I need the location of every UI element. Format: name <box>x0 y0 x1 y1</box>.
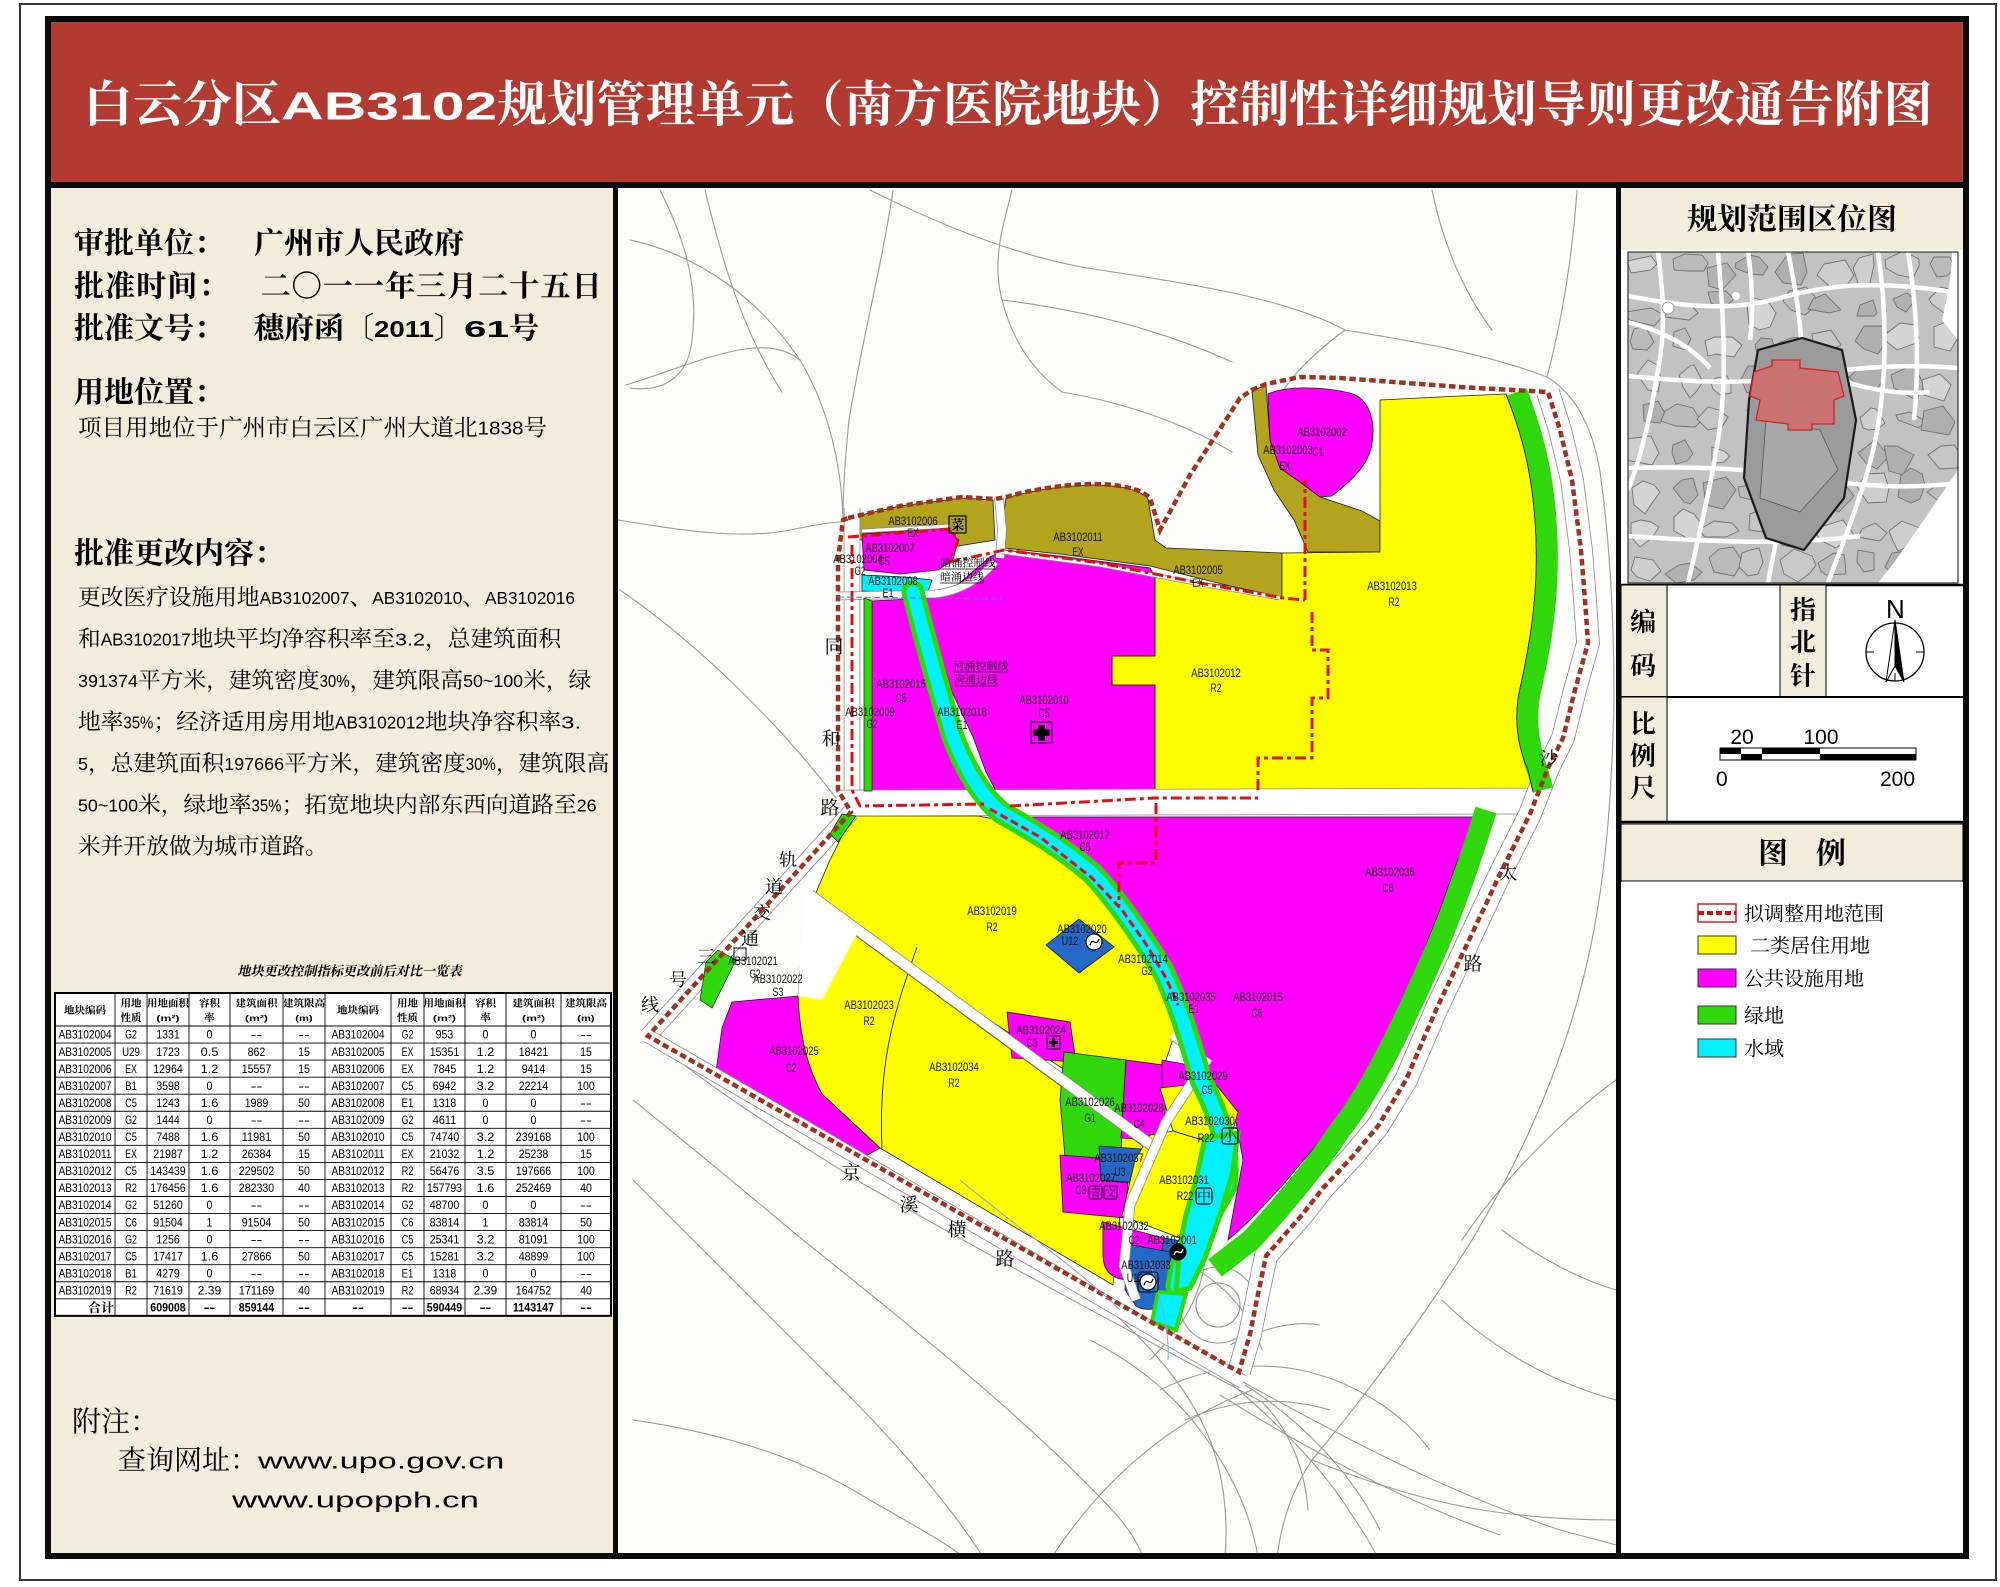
svg-text:AB3102004: AB3102004 <box>58 1028 111 1042</box>
svg-text:27866: 27866 <box>242 1249 272 1263</box>
svg-text:40: 40 <box>298 1181 310 1195</box>
svg-text:G2: G2 <box>402 1113 414 1127</box>
svg-text:50~100: 50~100 <box>463 671 523 691</box>
svg-text:197666: 197666 <box>224 754 284 774</box>
svg-text:AB3102031: AB3102031 <box>1159 1173 1209 1187</box>
svg-text:1.6: 1.6 <box>201 1096 219 1110</box>
svg-text:U29: U29 <box>122 1045 140 1059</box>
svg-text:U12: U12 <box>1062 934 1079 948</box>
svg-text:AB3102003: AB3102003 <box>1263 443 1313 457</box>
svg-text:EX: EX <box>125 1062 137 1076</box>
svg-text:AB3102032: AB3102032 <box>1099 1219 1149 1233</box>
svg-text:48899: 48899 <box>519 1249 549 1263</box>
svg-text:R2: R2 <box>864 1014 875 1028</box>
svg-text:G2: G2 <box>402 1028 414 1042</box>
svg-text:15: 15 <box>298 1045 310 1059</box>
svg-text:EX: EX <box>125 1147 137 1161</box>
svg-text:--: -- <box>298 1028 310 1042</box>
svg-text:AB3102010: AB3102010 <box>372 588 462 608</box>
svg-text:AB3102015: AB3102015 <box>1233 990 1283 1004</box>
svg-text:0: 0 <box>207 1266 213 1280</box>
svg-text:164752: 164752 <box>516 1283 552 1297</box>
svg-text:--: -- <box>251 1232 263 1246</box>
svg-text:0: 0 <box>483 1113 489 1127</box>
svg-text:1: 1 <box>207 1215 213 1229</box>
svg-text:EX: EX <box>1073 545 1084 559</box>
svg-text:0: 0 <box>207 1232 213 1246</box>
svg-text:30%: 30% <box>466 754 496 774</box>
svg-text:0: 0 <box>1716 768 1728 791</box>
svg-text:1331: 1331 <box>156 1028 180 1042</box>
svg-text:www.upopph.cn: www.upopph.cn <box>230 1488 479 1513</box>
svg-text:AB3102008: AB3102008 <box>58 1096 111 1110</box>
svg-text:2.39: 2.39 <box>198 1283 222 1297</box>
svg-text:AB3102027: AB3102027 <box>1066 1171 1116 1185</box>
svg-text:1.6: 1.6 <box>201 1181 219 1195</box>
svg-text:50: 50 <box>298 1215 310 1229</box>
svg-text:C2: C2 <box>786 1061 797 1075</box>
svg-text:AB3102015: AB3102015 <box>331 1215 384 1229</box>
svg-text:1256: 1256 <box>156 1232 180 1246</box>
svg-text:--: -- <box>580 1301 592 1315</box>
svg-text:--: -- <box>298 1113 310 1127</box>
svg-text:AB3102019: AB3102019 <box>58 1283 111 1297</box>
svg-text:50: 50 <box>298 1096 310 1110</box>
svg-text:0: 0 <box>483 1096 489 1110</box>
svg-text:AB3102009: AB3102009 <box>331 1113 384 1127</box>
svg-text:1318: 1318 <box>433 1266 457 1280</box>
svg-text:www.upo.gov.cn: www.upo.gov.cn <box>256 1449 504 1474</box>
svg-text:--: -- <box>480 1301 492 1315</box>
svg-text:1243: 1243 <box>156 1096 180 1110</box>
svg-text:AB3102026: AB3102026 <box>1065 1095 1115 1109</box>
svg-text:EX: EX <box>402 1045 414 1059</box>
svg-text:26: 26 <box>577 796 597 816</box>
svg-text:--: -- <box>298 1079 310 1093</box>
svg-text:C5: C5 <box>125 1249 137 1263</box>
svg-text:12964: 12964 <box>153 1062 183 1076</box>
svg-text:C5: C5 <box>1202 1083 1213 1097</box>
svg-text:EX: EX <box>1193 576 1204 590</box>
svg-text:C5: C5 <box>125 1096 137 1110</box>
svg-text:AB3102034: AB3102034 <box>929 1060 979 1074</box>
svg-text:AB3102007: AB3102007 <box>331 1079 384 1093</box>
svg-text:E1: E1 <box>883 586 894 600</box>
svg-text:AB3102010: AB3102010 <box>331 1130 384 1144</box>
svg-text:30%: 30% <box>320 671 350 691</box>
svg-text:AB3102009: AB3102009 <box>58 1113 111 1127</box>
svg-text:R2: R2 <box>1389 595 1400 609</box>
svg-text:(m²): (m²) <box>156 1014 179 1023</box>
svg-text:AB3102016: AB3102016 <box>876 677 926 691</box>
svg-text:100: 100 <box>577 1232 595 1246</box>
svg-text:15: 15 <box>298 1147 310 1161</box>
svg-text:AB3102029: AB3102029 <box>1178 1069 1228 1083</box>
svg-text:1989: 1989 <box>245 1096 269 1110</box>
svg-text:56476: 56476 <box>430 1164 460 1178</box>
svg-text:143439: 143439 <box>150 1164 186 1178</box>
svg-text:S3: S3 <box>773 985 784 999</box>
svg-text:AB3102010: AB3102010 <box>58 1130 111 1144</box>
svg-text:B1: B1 <box>125 1079 137 1093</box>
svg-text:50: 50 <box>580 1215 592 1229</box>
svg-text:R22: R22 <box>1177 1189 1194 1203</box>
svg-text:AB3102: AB3102 <box>281 86 497 129</box>
svg-text:0: 0 <box>483 1198 489 1212</box>
svg-text:AB3102013: AB3102013 <box>1367 579 1417 593</box>
svg-text:26384: 26384 <box>242 1147 272 1161</box>
svg-text:100: 100 <box>577 1249 595 1263</box>
svg-text:0: 0 <box>531 1198 537 1212</box>
svg-text:229502: 229502 <box>239 1164 275 1178</box>
svg-text:176456: 176456 <box>150 1181 186 1195</box>
svg-text:AB3102019: AB3102019 <box>331 1283 384 1297</box>
svg-text:(m²): (m²) <box>433 1014 456 1023</box>
svg-text:U3: U3 <box>1115 1165 1126 1179</box>
svg-text:0: 0 <box>531 1113 537 1127</box>
svg-text:3.2: 3.2 <box>477 1130 495 1144</box>
svg-text:G2: G2 <box>867 717 878 731</box>
svg-text:AB3102018: AB3102018 <box>937 705 987 719</box>
svg-text:--: -- <box>298 1301 310 1315</box>
svg-text:590449: 590449 <box>427 1301 463 1315</box>
svg-text:AB3102008: AB3102008 <box>331 1096 384 1110</box>
svg-text:EX: EX <box>402 1062 414 1076</box>
svg-text:AB3102002: AB3102002 <box>1297 425 1347 439</box>
svg-text:--: -- <box>298 1198 310 1212</box>
svg-text:0: 0 <box>531 1266 537 1280</box>
svg-text:C3: C3 <box>1076 1183 1087 1197</box>
svg-text:C5: C5 <box>125 1130 137 1144</box>
svg-text:25238: 25238 <box>519 1147 549 1161</box>
svg-text:15: 15 <box>580 1147 592 1161</box>
svg-text:G2: G2 <box>402 1198 414 1212</box>
svg-text:1143147: 1143147 <box>513 1301 555 1315</box>
svg-text:40: 40 <box>580 1283 592 1297</box>
svg-text:R2: R2 <box>125 1181 137 1195</box>
svg-text:AB3102016: AB3102016 <box>58 1232 111 1246</box>
svg-text:AB3102015: AB3102015 <box>58 1215 111 1229</box>
svg-text:(m²): (m²) <box>522 1014 545 1023</box>
svg-text:--: -- <box>298 1266 310 1280</box>
svg-text:AB3102017: AB3102017 <box>331 1249 384 1263</box>
svg-text:AB3102005: AB3102005 <box>1173 563 1223 577</box>
svg-text:83814: 83814 <box>519 1215 549 1229</box>
svg-text:R2: R2 <box>949 1076 960 1090</box>
svg-text:68934: 68934 <box>430 1283 460 1297</box>
svg-text:G2: G2 <box>125 1232 137 1246</box>
svg-text:1.2: 1.2 <box>201 1062 219 1076</box>
svg-text:--: -- <box>580 1266 592 1280</box>
svg-text:AB3102012: AB3102012 <box>58 1164 111 1178</box>
svg-text:R2: R2 <box>125 1283 137 1297</box>
svg-text:0: 0 <box>207 1198 213 1212</box>
svg-text:--: -- <box>402 1301 414 1315</box>
svg-text:AB3102019: AB3102019 <box>967 904 1017 918</box>
svg-text:AB3102011: AB3102011 <box>1053 530 1103 544</box>
svg-text:15351: 15351 <box>430 1045 460 1059</box>
svg-text:1.6: 1.6 <box>477 1181 495 1195</box>
svg-text:2.39: 2.39 <box>474 1283 498 1297</box>
svg-text:G2: G2 <box>750 967 761 981</box>
svg-text:3.2: 3.2 <box>477 1079 495 1093</box>
svg-text:17417: 17417 <box>153 1249 183 1263</box>
svg-text:G2: G2 <box>125 1198 137 1212</box>
svg-text:G2: G2 <box>125 1028 137 1042</box>
svg-text:953: 953 <box>436 1028 454 1042</box>
svg-text:3.2: 3.2 <box>477 1232 495 1246</box>
svg-text:50: 50 <box>298 1164 310 1178</box>
svg-text:862: 862 <box>248 1045 266 1059</box>
svg-text:252469: 252469 <box>516 1181 552 1195</box>
svg-text:AB3102005: AB3102005 <box>58 1045 111 1059</box>
svg-text:C5: C5 <box>402 1130 414 1144</box>
svg-text:AB3102011: AB3102011 <box>331 1147 384 1161</box>
svg-text:AB3102010: AB3102010 <box>1019 693 1069 707</box>
svg-text:71619: 71619 <box>153 1283 183 1297</box>
svg-text:C1: C1 <box>1313 445 1324 459</box>
svg-text:4611: 4611 <box>433 1113 457 1127</box>
svg-text:81091: 81091 <box>519 1232 549 1246</box>
svg-text:AB3102013: AB3102013 <box>331 1181 384 1195</box>
svg-text:AB3102007: AB3102007 <box>260 588 350 608</box>
svg-text:AB3102005: AB3102005 <box>331 1045 384 1059</box>
svg-text:609008: 609008 <box>150 1301 186 1315</box>
svg-text:C5: C5 <box>1039 706 1050 720</box>
svg-text:AB3102012: AB3102012 <box>1191 666 1241 680</box>
svg-text:1.2: 1.2 <box>201 1147 219 1161</box>
svg-text:21032: 21032 <box>430 1147 460 1161</box>
svg-text:--: -- <box>204 1301 216 1315</box>
svg-text:(m): (m) <box>295 1014 313 1023</box>
svg-text:1838: 1838 <box>478 418 524 439</box>
svg-text:--: -- <box>298 1232 310 1246</box>
svg-text:0.5: 0.5 <box>201 1045 219 1059</box>
svg-text:0: 0 <box>531 1096 537 1110</box>
svg-text:50~100: 50~100 <box>78 796 138 816</box>
svg-text:R2: R2 <box>987 920 998 934</box>
svg-text:1.6: 1.6 <box>201 1130 219 1144</box>
svg-text:C5: C5 <box>402 1232 414 1246</box>
svg-text:AB3102021: AB3102021 <box>728 954 778 968</box>
svg-text:157793: 157793 <box>427 1181 462 1195</box>
svg-text:15557: 15557 <box>242 1062 272 1076</box>
svg-text:EX: EX <box>1280 459 1291 473</box>
svg-text:AB3102006: AB3102006 <box>331 1062 384 1076</box>
svg-text:R2: R2 <box>1211 681 1222 695</box>
svg-text:--: -- <box>352 1301 364 1315</box>
svg-text:100: 100 <box>1803 726 1838 749</box>
svg-text:R2: R2 <box>402 1164 414 1178</box>
svg-text:51260: 51260 <box>153 1198 183 1212</box>
svg-text:C6: C6 <box>1383 881 1394 895</box>
svg-text:AB3102030: AB3102030 <box>1185 1114 1235 1128</box>
svg-text:1723: 1723 <box>156 1045 180 1059</box>
svg-text:11981: 11981 <box>242 1130 272 1144</box>
svg-text:AB3102017: AB3102017 <box>101 630 191 650</box>
svg-text:AB3102023: AB3102023 <box>844 998 894 1012</box>
svg-text:100: 100 <box>577 1079 595 1093</box>
svg-text:91504: 91504 <box>153 1215 183 1229</box>
svg-text:1.2: 1.2 <box>477 1147 495 1161</box>
svg-text:C3: C3 <box>1027 1036 1038 1050</box>
svg-text:C5: C5 <box>402 1079 414 1093</box>
svg-text:AB3102014: AB3102014 <box>331 1198 384 1212</box>
svg-text:100: 100 <box>577 1164 595 1178</box>
svg-text:AB3102024: AB3102024 <box>1016 1023 1066 1037</box>
svg-text:E1: E1 <box>402 1096 414 1110</box>
svg-text:22214: 22214 <box>519 1079 549 1093</box>
svg-text:AB3102033: AB3102033 <box>1121 1258 1171 1272</box>
svg-text:EX: EX <box>402 1147 414 1161</box>
svg-text:R22: R22 <box>1198 1131 1215 1145</box>
svg-text:239168: 239168 <box>516 1130 552 1144</box>
svg-text:AB3102018: AB3102018 <box>331 1266 384 1280</box>
svg-text:83814: 83814 <box>430 1215 460 1229</box>
svg-text:1.6: 1.6 <box>201 1164 219 1178</box>
svg-text:AB3102014: AB3102014 <box>58 1198 111 1212</box>
svg-text:B1: B1 <box>125 1266 137 1280</box>
svg-text:3.2: 3.2 <box>395 630 425 650</box>
svg-text:74740: 74740 <box>430 1130 460 1144</box>
svg-text:91504: 91504 <box>242 1215 272 1229</box>
svg-text:AB3102006: AB3102006 <box>58 1062 111 1076</box>
svg-text:0: 0 <box>207 1028 213 1042</box>
svg-text:C6: C6 <box>125 1215 137 1229</box>
svg-text:AB3102025: AB3102025 <box>769 1044 819 1058</box>
svg-text:9414: 9414 <box>522 1062 546 1076</box>
svg-text:282330: 282330 <box>239 1181 275 1195</box>
svg-text:--: -- <box>251 1028 263 1042</box>
svg-text:3.: 3. <box>561 713 581 733</box>
svg-text:AB3102022: AB3102022 <box>753 972 803 986</box>
svg-text:AB3102018: AB3102018 <box>58 1266 111 1280</box>
svg-text:18421: 18421 <box>519 1045 549 1059</box>
svg-text:AB3102016: AB3102016 <box>485 588 575 608</box>
svg-text:35%: 35% <box>252 796 282 816</box>
svg-text:35%: 35% <box>123 713 153 733</box>
svg-text:21987: 21987 <box>153 1147 183 1161</box>
svg-text:7488: 7488 <box>156 1130 180 1144</box>
svg-text:200: 200 <box>1880 768 1915 791</box>
svg-text:--: -- <box>580 1028 592 1042</box>
svg-text:859144: 859144 <box>239 1301 275 1315</box>
svg-text:15: 15 <box>298 1062 310 1076</box>
svg-text:40: 40 <box>580 1181 592 1195</box>
svg-text:C6: C6 <box>402 1215 414 1229</box>
svg-text:--: -- <box>251 1113 263 1127</box>
svg-text:15281: 15281 <box>430 1249 460 1263</box>
svg-text:N: N <box>1886 594 1905 624</box>
svg-text:2011: 2011 <box>374 316 434 342</box>
svg-text:AB3102013: AB3102013 <box>58 1181 111 1195</box>
svg-text:AB3102011: AB3102011 <box>58 1147 111 1161</box>
svg-text:--: -- <box>251 1266 263 1280</box>
svg-text:5: 5 <box>78 754 88 774</box>
svg-text:R2: R2 <box>402 1283 414 1297</box>
svg-text:171169: 171169 <box>239 1283 275 1297</box>
svg-text:100: 100 <box>577 1130 595 1144</box>
svg-text:1318: 1318 <box>433 1096 457 1110</box>
svg-text:0: 0 <box>531 1028 537 1042</box>
svg-text:G2: G2 <box>1142 964 1153 978</box>
svg-text:3.2: 3.2 <box>477 1249 495 1263</box>
svg-text:--: -- <box>580 1198 592 1212</box>
svg-text:C5: C5 <box>1080 840 1091 854</box>
svg-text:AB3102007: AB3102007 <box>58 1079 111 1093</box>
svg-text:3598: 3598 <box>156 1079 180 1093</box>
svg-text:197666: 197666 <box>516 1164 552 1178</box>
svg-text:15: 15 <box>580 1062 592 1076</box>
svg-text:1.2: 1.2 <box>477 1062 495 1076</box>
svg-text:4279: 4279 <box>156 1266 180 1280</box>
svg-text:--: -- <box>251 1079 263 1093</box>
svg-text:40: 40 <box>298 1283 310 1297</box>
svg-text:AB3102001: AB3102001 <box>1147 1233 1197 1247</box>
svg-text:AB3102037: AB3102037 <box>1094 1151 1144 1165</box>
svg-text:15: 15 <box>580 1045 592 1059</box>
svg-text:1444: 1444 <box>156 1113 180 1127</box>
svg-text:--: -- <box>580 1113 592 1127</box>
svg-text:G1: G1 <box>1085 1111 1096 1125</box>
svg-text:AB3102017: AB3102017 <box>58 1249 111 1263</box>
svg-text:C5: C5 <box>125 1164 137 1178</box>
svg-text:AB3102004: AB3102004 <box>331 1028 384 1042</box>
svg-text:391374: 391374 <box>78 671 138 691</box>
svg-text:0: 0 <box>483 1266 489 1280</box>
svg-text:AB3102028: AB3102028 <box>1114 1101 1164 1115</box>
svg-text:AB3102016: AB3102016 <box>331 1232 384 1246</box>
svg-text:61: 61 <box>464 316 509 342</box>
svg-text:G2: G2 <box>855 564 866 578</box>
svg-text:C5: C5 <box>896 691 907 705</box>
svg-text:R2: R2 <box>402 1181 414 1195</box>
svg-text:AB3102036: AB3102036 <box>1365 865 1415 879</box>
svg-text:3.5: 3.5 <box>477 1164 495 1178</box>
svg-text:48700: 48700 <box>430 1198 460 1212</box>
svg-text:0: 0 <box>483 1028 489 1042</box>
svg-text:50: 50 <box>298 1249 310 1263</box>
svg-text:20: 20 <box>1730 726 1753 749</box>
svg-text:1: 1 <box>483 1215 489 1229</box>
svg-text:1.6: 1.6 <box>201 1249 219 1263</box>
svg-text:E1: E1 <box>1189 1002 1200 1016</box>
svg-text:25341: 25341 <box>430 1232 460 1246</box>
svg-text:E1: E1 <box>402 1266 414 1280</box>
svg-text:0: 0 <box>207 1113 213 1127</box>
svg-text:EX: EX <box>908 526 919 540</box>
svg-text:--: -- <box>580 1096 592 1110</box>
svg-text:7845: 7845 <box>433 1062 457 1076</box>
svg-text:C6: C6 <box>1252 1006 1263 1020</box>
svg-text:6942: 6942 <box>433 1079 457 1093</box>
svg-text:C4: C4 <box>1134 1117 1145 1131</box>
svg-text:G2: G2 <box>125 1113 137 1127</box>
svg-text:(m): (m) <box>577 1014 595 1023</box>
svg-text:1.2: 1.2 <box>477 1045 495 1059</box>
svg-text:AB3102012: AB3102012 <box>331 1164 384 1178</box>
svg-text:50: 50 <box>298 1130 310 1144</box>
svg-text:C2: C2 <box>1129 1233 1140 1247</box>
svg-text:0: 0 <box>207 1079 213 1093</box>
svg-text:E1: E1 <box>957 718 968 732</box>
svg-text:--: -- <box>251 1198 263 1212</box>
svg-text:C5: C5 <box>402 1249 414 1263</box>
svg-text:AB3102012: AB3102012 <box>335 713 425 733</box>
svg-text:(m²): (m²) <box>245 1014 268 1023</box>
